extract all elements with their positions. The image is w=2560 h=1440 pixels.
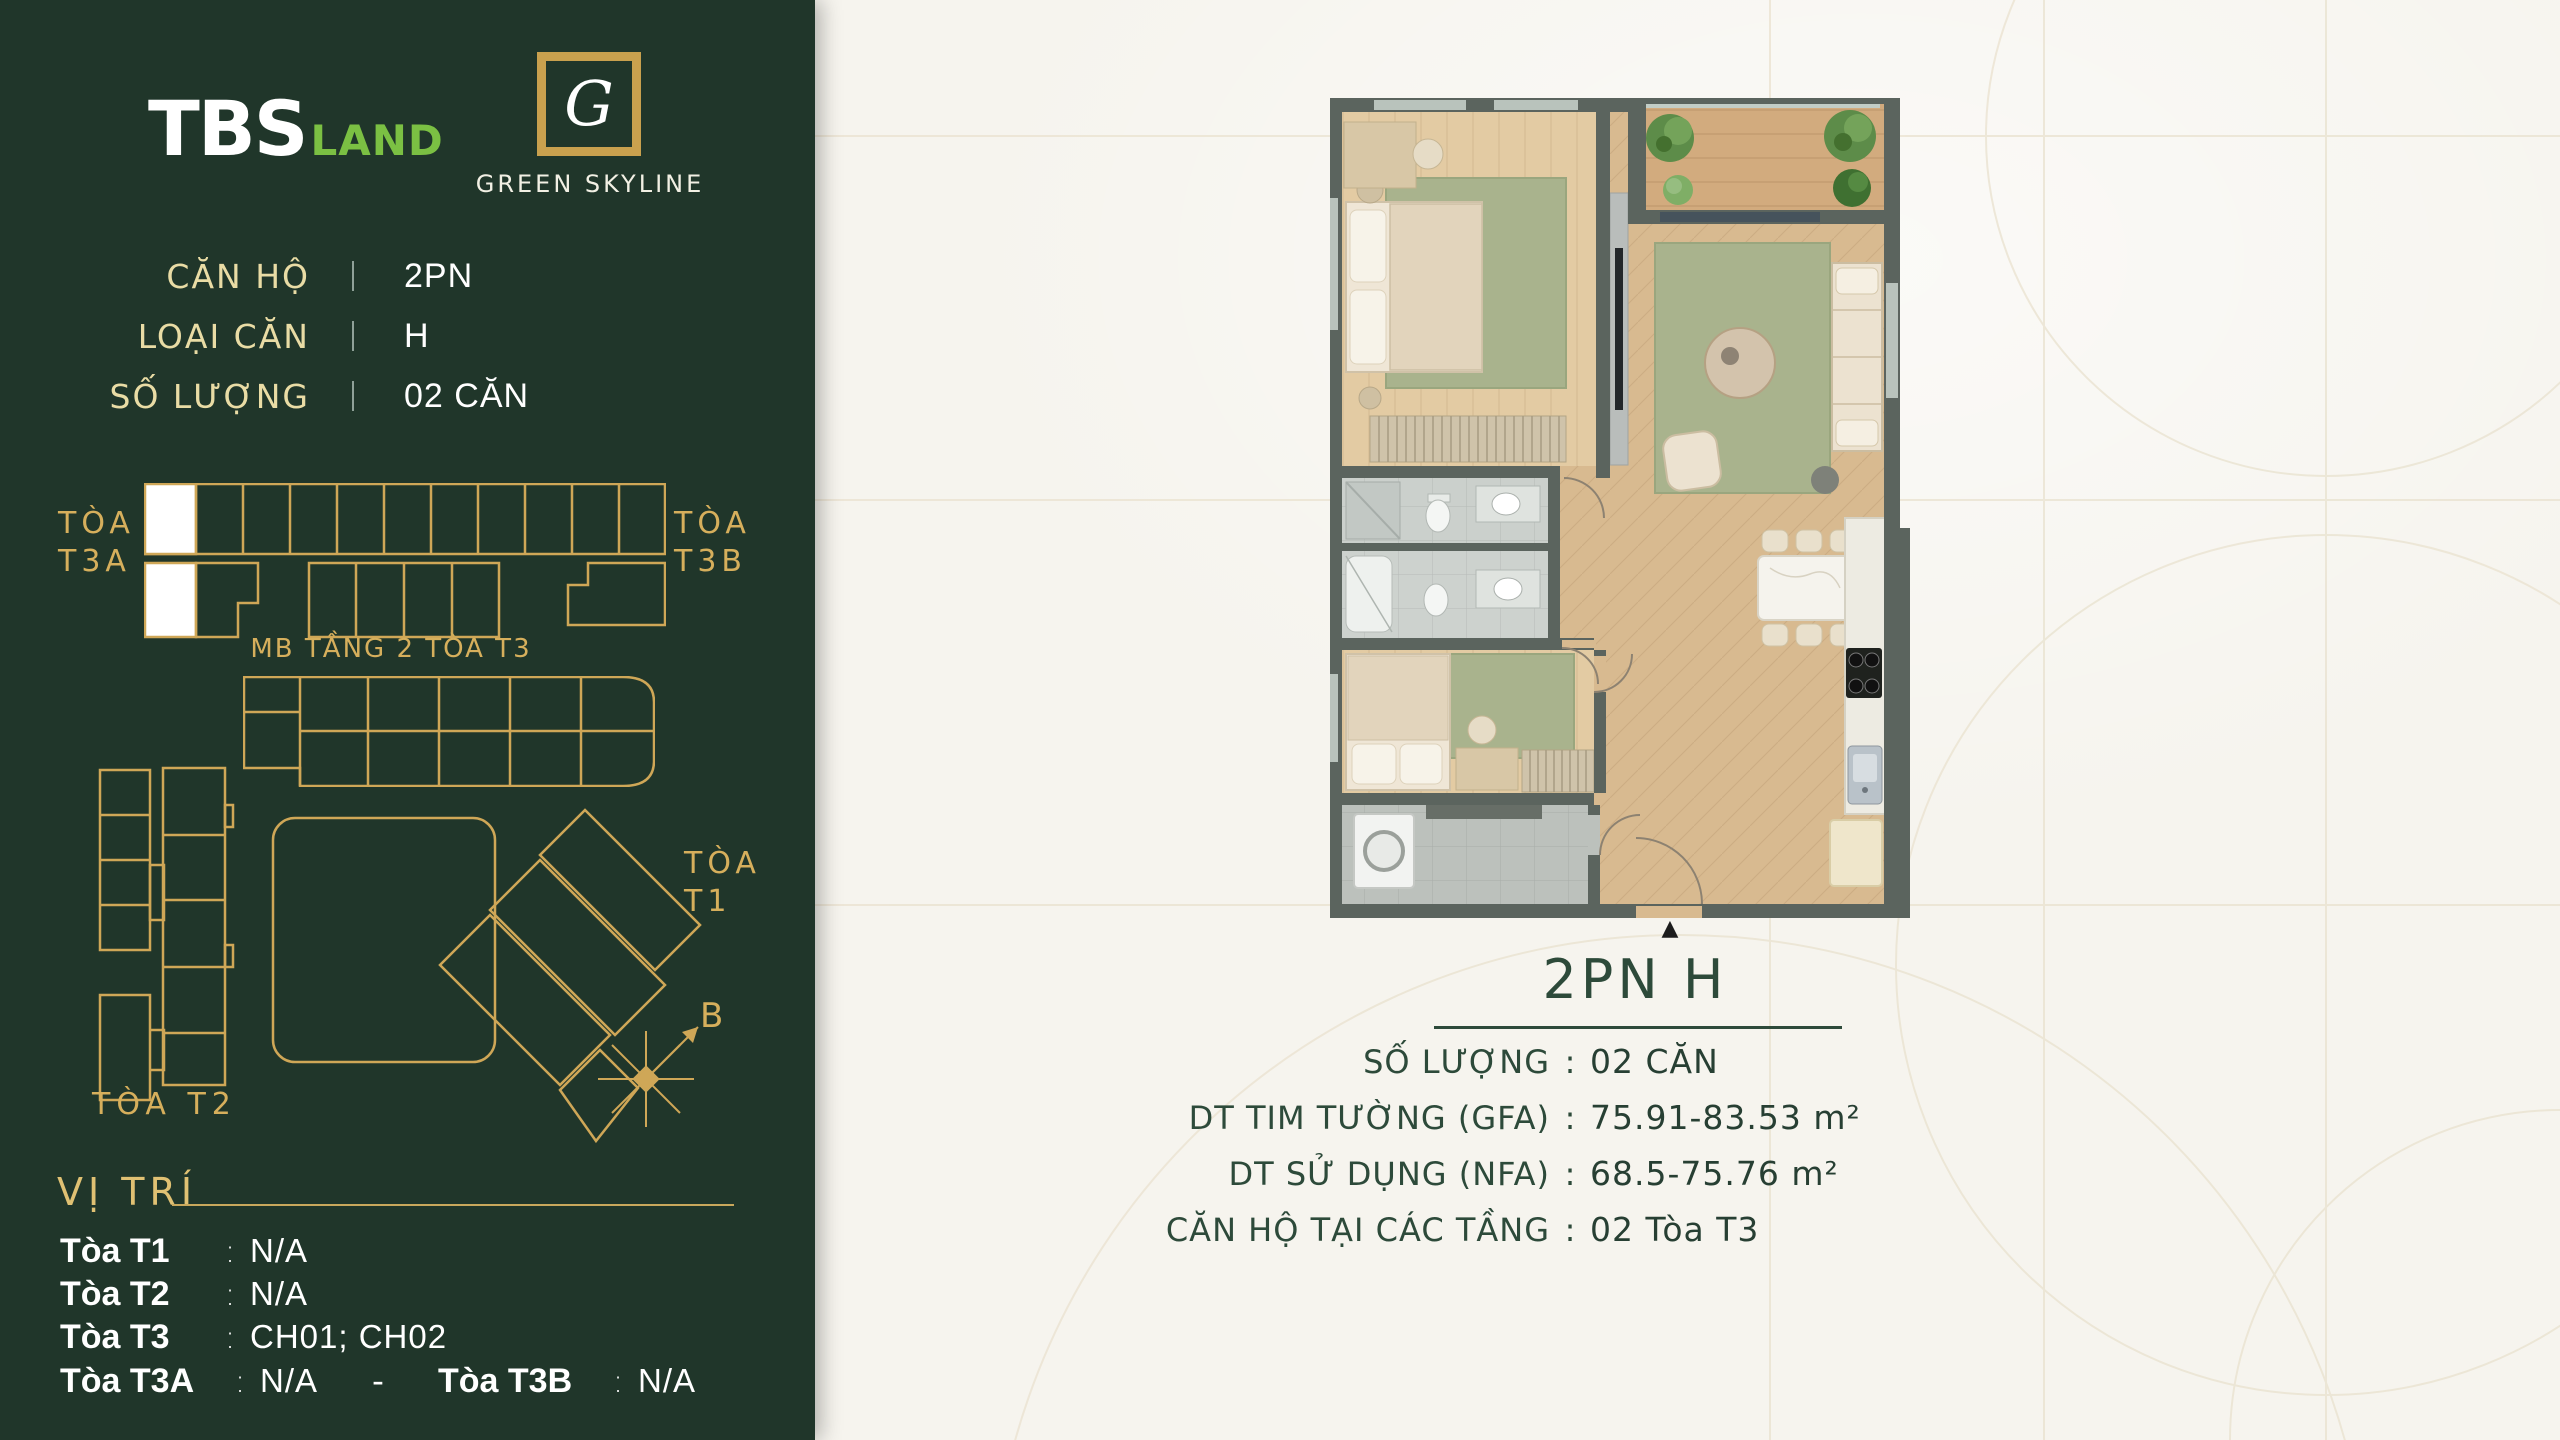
sink bbox=[1492, 493, 1520, 515]
master-bedroom bbox=[1342, 112, 1596, 466]
spec-value: H bbox=[404, 317, 430, 356]
tv-console bbox=[1610, 193, 1628, 465]
side-table bbox=[1811, 466, 1839, 494]
sink bbox=[1494, 578, 1522, 600]
colon: : bbox=[210, 1275, 250, 1313]
toilet bbox=[1426, 500, 1450, 532]
unit-details: SỐ LƯỢNG : 02 CĂN DT TIM TƯỜNG (GFA) : 7… bbox=[1160, 1042, 1980, 1266]
detail-label: SỐ LƯỢNG bbox=[1160, 1043, 1550, 1081]
coffee-table bbox=[1705, 328, 1775, 398]
stove bbox=[1846, 648, 1882, 698]
location-underline bbox=[172, 1204, 734, 1206]
armchair bbox=[1661, 430, 1722, 493]
land-logo-text: LAND bbox=[311, 116, 444, 165]
location-rows: Tòa T1 : N/A Tòa T2 : N/A Tòa T3 : CH01;… bbox=[60, 1232, 696, 1404]
colon: : bbox=[220, 1362, 260, 1400]
colon: : bbox=[1550, 1155, 1590, 1193]
location-row: Tòa T2 : N/A bbox=[60, 1275, 696, 1318]
spec-value: 2PN bbox=[404, 257, 473, 296]
t3b-label: TÒA T3B bbox=[674, 505, 751, 581]
bedroom-2 bbox=[1342, 650, 1594, 793]
bathroom-2 bbox=[1342, 551, 1548, 638]
location-value: N/A bbox=[250, 1232, 308, 1270]
green-skyline-monogram: G bbox=[537, 52, 641, 156]
detail-label: CĂN HỘ TẠI CÁC TẦNG bbox=[1160, 1211, 1550, 1249]
fridge bbox=[1830, 820, 1882, 886]
unit-spec-list: CĂN HỘ 2PN LOẠI CĂN H SỐ LƯỢNG 02 CĂN bbox=[0, 246, 815, 426]
colon: : bbox=[210, 1318, 250, 1356]
detail-row: SỐ LƯỢNG : 02 CĂN bbox=[1160, 1042, 1980, 1098]
detail-value: 75.91-83.53 m² bbox=[1590, 1098, 1861, 1137]
location-value: N/A bbox=[638, 1362, 696, 1400]
detail-row: DT TIM TƯỜNG (GFA) : 75.91-83.53 m² bbox=[1160, 1098, 1980, 1154]
toilet bbox=[1424, 584, 1448, 616]
laundry-room bbox=[1342, 805, 1588, 904]
spec-row: LOẠI CĂN H bbox=[0, 306, 815, 366]
sofa bbox=[1832, 263, 1882, 451]
divider-bar bbox=[352, 321, 354, 351]
washing-machine bbox=[1354, 814, 1414, 888]
colon: : bbox=[1550, 1043, 1590, 1081]
tower-t2-blocks bbox=[100, 768, 233, 1100]
detail-row: DT SỬ DỤNG (NFA) : 68.5-75.76 m² bbox=[1160, 1154, 1980, 1210]
divider-bar bbox=[352, 261, 354, 291]
detail-row: CĂN HỘ TẠI CÁC TẦNG : 02 Tòa T3 bbox=[1160, 1210, 1980, 1266]
location-row: Tòa T1 : N/A bbox=[60, 1232, 696, 1275]
colon: : bbox=[1550, 1211, 1590, 1249]
master-wardrobe bbox=[1370, 416, 1566, 462]
desk-chair bbox=[1413, 139, 1443, 169]
highlighted-unit bbox=[145, 563, 196, 637]
page: { "misc": { "colon": ":", "dash": "-", "… bbox=[0, 0, 2560, 1440]
spec-label: LOẠI CĂN bbox=[0, 317, 310, 356]
location-row: Tòa T3A : N/A - Tòa T3B : N/A bbox=[60, 1361, 696, 1404]
t2-label: TÒA T2 bbox=[92, 1086, 237, 1124]
unit-title: 2PN H bbox=[1335, 948, 1935, 1011]
location-label: Tòa T3 bbox=[60, 1318, 210, 1357]
laundry-counter bbox=[1426, 805, 1542, 819]
location-row: Tòa T3 : CH01; CH02 bbox=[60, 1318, 696, 1361]
colon: : bbox=[210, 1232, 250, 1270]
kitchen-sink bbox=[1848, 746, 1882, 804]
bed-2 bbox=[1346, 654, 1450, 790]
highlighted-unit bbox=[145, 484, 196, 554]
floor-diagram-caption: MB TẦNG 2 TÒA T3 bbox=[130, 634, 652, 664]
t3-floor-diagram bbox=[144, 483, 666, 643]
dash-separator: - bbox=[318, 1361, 438, 1400]
master-bed bbox=[1346, 202, 1482, 372]
nightstand bbox=[1359, 387, 1381, 409]
spec-label: CĂN HỘ bbox=[0, 257, 310, 296]
detail-label: DT TIM TƯỜNG (GFA) bbox=[1160, 1099, 1550, 1137]
location-label: Tòa T2 bbox=[60, 1275, 210, 1314]
divider-bar bbox=[352, 381, 354, 411]
location-label: Tòa T3B bbox=[438, 1362, 598, 1401]
location-label: Tòa T1 bbox=[60, 1232, 210, 1271]
floor-plan bbox=[1330, 98, 1910, 918]
location-heading: VỊ TRÍ bbox=[57, 1170, 197, 1214]
monogram-g: G bbox=[564, 73, 614, 135]
compass-north-label: B bbox=[700, 996, 723, 1036]
spec-row: CĂN HỘ 2PN bbox=[0, 246, 815, 306]
detail-value: 02 Tòa T3 bbox=[1590, 1210, 1759, 1249]
desk bbox=[1344, 122, 1416, 188]
desk bbox=[1456, 748, 1518, 790]
title-underline bbox=[1434, 1026, 1842, 1029]
tbs-logo-text: TBS bbox=[148, 84, 307, 173]
balcony bbox=[1646, 104, 1884, 210]
entry-marker: ▲ bbox=[1650, 916, 1690, 941]
location-label: Tòa T3A bbox=[60, 1362, 220, 1401]
tower-t1-blocks bbox=[440, 810, 700, 1141]
spec-label: SỐ LƯỢNG bbox=[0, 377, 310, 416]
detail-label: DT SỬ DỤNG (NFA) bbox=[1160, 1155, 1550, 1193]
spec-row: SỐ LƯỢNG 02 CĂN bbox=[0, 366, 815, 426]
podium-outline bbox=[273, 818, 495, 1062]
green-skyline-wordmark: GREEN SKYLINE bbox=[462, 170, 718, 198]
spec-value: 02 CĂN bbox=[404, 377, 529, 416]
location-value: N/A bbox=[250, 1275, 308, 1313]
colon: : bbox=[598, 1362, 638, 1400]
detail-value: 02 CĂN bbox=[1590, 1042, 1719, 1081]
location-value: CH01; CH02 bbox=[250, 1318, 447, 1356]
tbs-land-logo: TBS LAND bbox=[148, 84, 444, 173]
bathroom-1 bbox=[1342, 478, 1548, 543]
location-value: N/A bbox=[260, 1362, 318, 1400]
sidebar: TBS LAND G GREEN SKYLINE CĂN HỘ 2PN LOẠI… bbox=[0, 0, 815, 1440]
desk-chair bbox=[1468, 716, 1496, 744]
t1-label: TÒA T1 bbox=[684, 845, 774, 921]
compass-rose bbox=[598, 1027, 698, 1127]
wardrobe-2 bbox=[1522, 750, 1594, 792]
detail-value: 68.5-75.76 m² bbox=[1590, 1154, 1839, 1193]
colon: : bbox=[1550, 1099, 1590, 1137]
t3a-label: TÒA T3A bbox=[58, 505, 135, 581]
